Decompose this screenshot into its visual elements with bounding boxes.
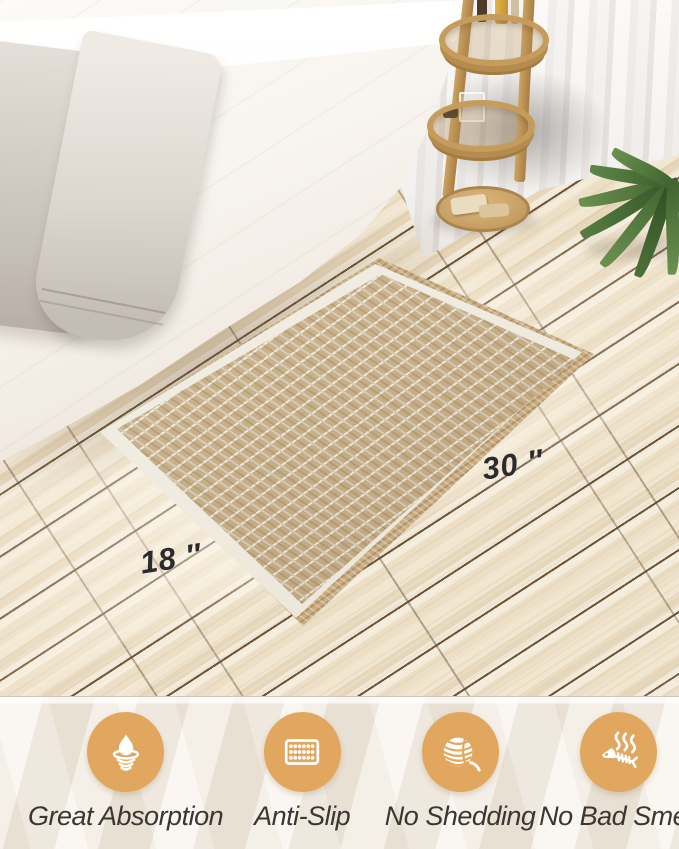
feature-label: No Shedding <box>385 803 536 830</box>
cart-lower-shelf <box>427 100 535 152</box>
soap-bar <box>479 203 510 218</box>
yarn-ball-icon <box>422 712 499 792</box>
feature-strip: Great Absorption Anti-Slip <box>0 696 679 849</box>
product-image: 18 ″ 30 ″ Great Absorption <box>0 0 679 849</box>
feature-label: No Bad Smell <box>539 803 679 830</box>
feature-label: Anti-Slip <box>254 803 350 830</box>
cart-top-shelf <box>439 14 549 66</box>
soap-tray <box>436 186 530 232</box>
feature-label: Great Absorption <box>28 803 223 830</box>
green-plant <box>556 56 679 271</box>
feature-no-smell: No Bad Smell <box>539 712 679 830</box>
feature-anti-slip: Anti-Slip <box>223 712 381 830</box>
feature-no-shedding: No Shedding <box>381 712 539 830</box>
absorption-drop-icon <box>87 712 164 792</box>
feature-row: Great Absorption Anti-Slip <box>0 697 679 830</box>
bathroom-scene: 18 ″ 30 ″ <box>0 0 679 697</box>
anti-slip-dots-icon <box>264 712 341 792</box>
feature-absorption: Great Absorption <box>28 712 223 830</box>
fish-bone-icon <box>580 712 657 792</box>
